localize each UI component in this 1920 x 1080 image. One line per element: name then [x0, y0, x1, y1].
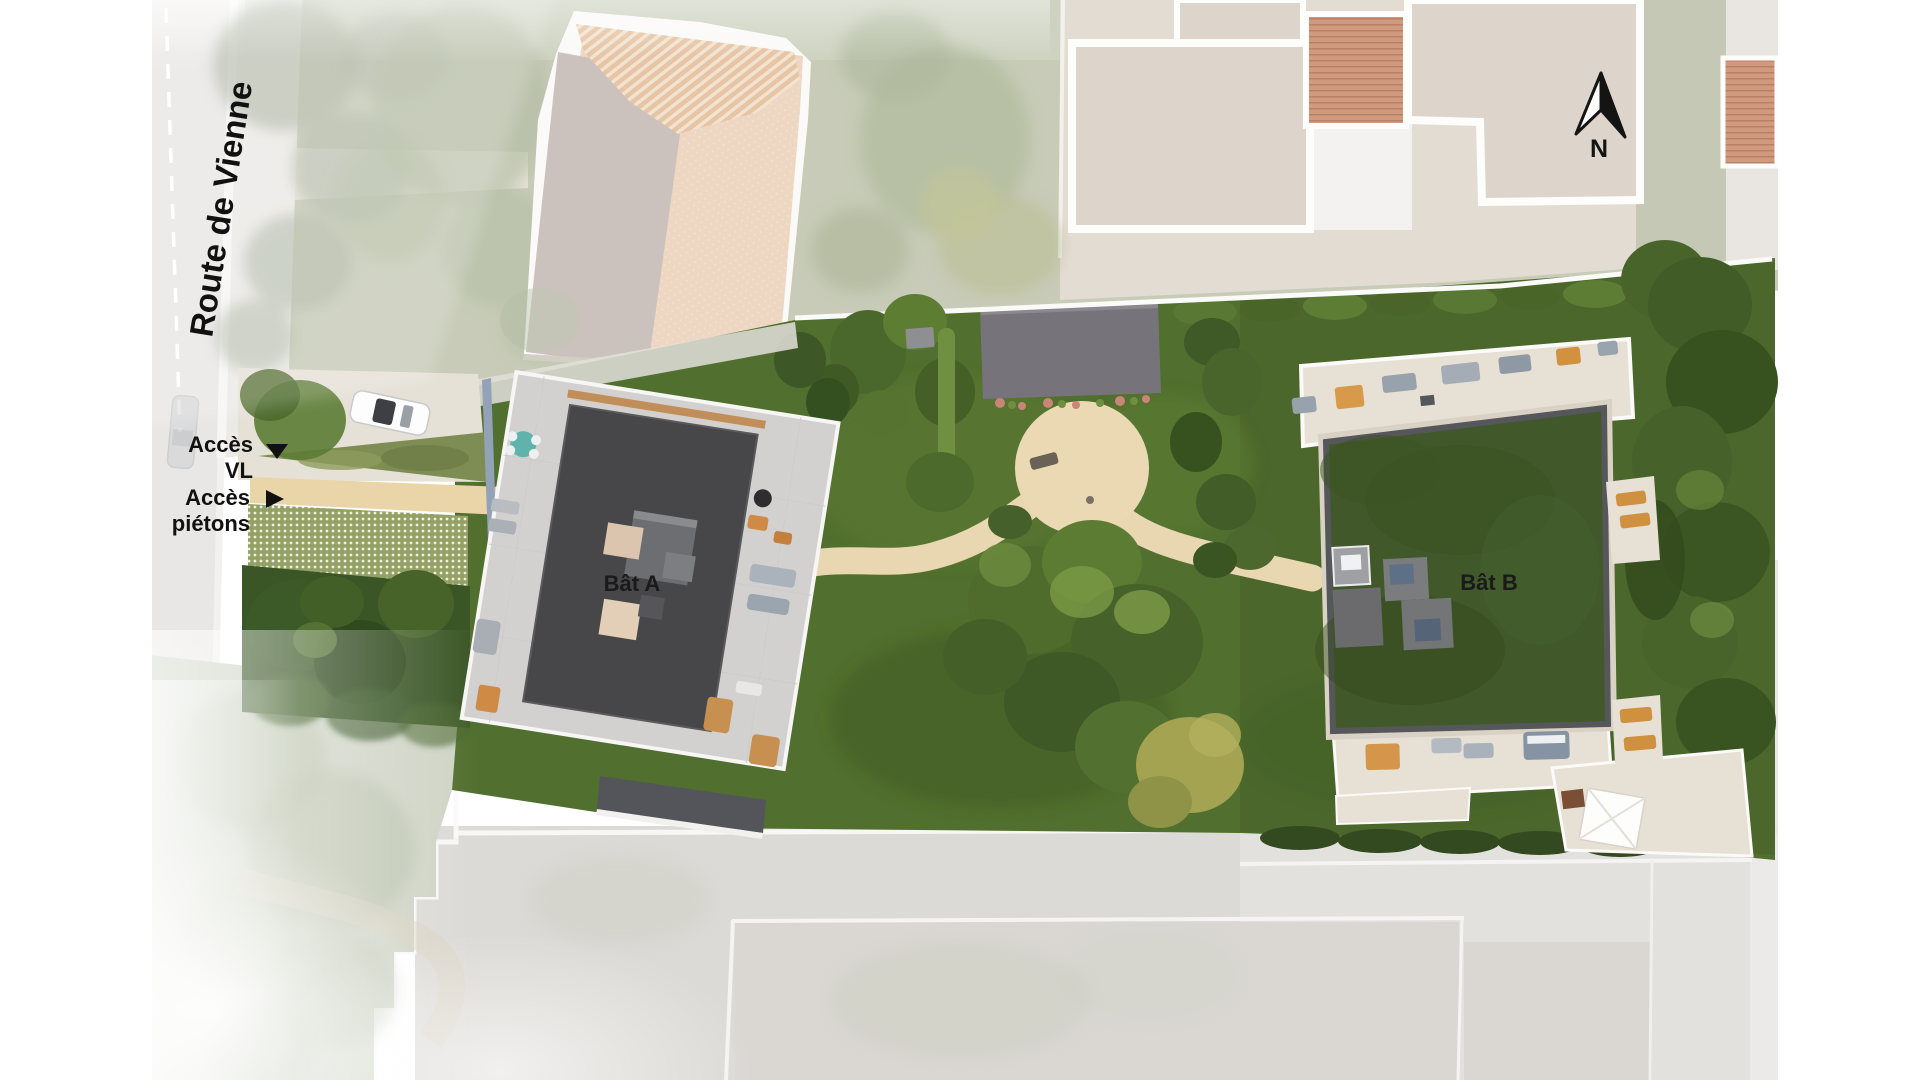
svg-text:piétons: piétons	[172, 511, 250, 536]
svg-text:Bât A: Bât A	[604, 571, 661, 596]
svg-text:VL: VL	[225, 458, 253, 483]
svg-text:Bât B: Bât B	[1460, 570, 1517, 595]
svg-text:Accès: Accès	[188, 432, 253, 457]
svg-text:N: N	[1590, 135, 1608, 163]
svg-text:Accès: Accès	[185, 485, 250, 510]
